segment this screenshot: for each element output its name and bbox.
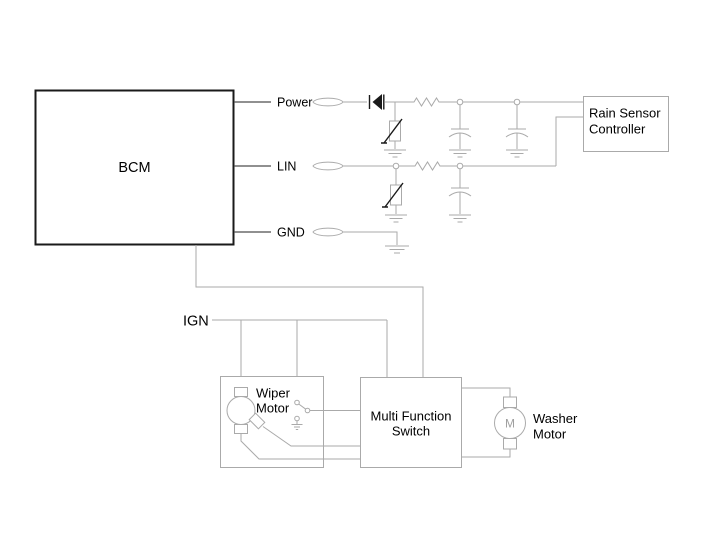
power-wire-with-resistor [385, 98, 583, 106]
ground-icon [449, 215, 471, 222]
washer-motor-label-line2: Motor [533, 427, 567, 442]
power-filter-capacitor-icon [370, 94, 384, 110]
lin-wire-with-resistor [343, 117, 583, 170]
wiper-motor-label-line1: Wiper [256, 386, 291, 401]
gnd-pin-label: GND [277, 226, 305, 240]
bcm-label: BCM [118, 160, 150, 176]
multi-function-switch-label-line2: Switch [392, 424, 430, 439]
washer-motor-symbol: M [495, 397, 526, 449]
power-varistor-icon [381, 119, 402, 143]
lin-pin-label: LIN [277, 160, 296, 174]
ign-label: IGN [183, 314, 209, 330]
wiring-diagram-page: BCM Power LIN GND Rain Se [0, 0, 703, 559]
lin-connector-oval-icon [313, 162, 343, 170]
junction-dot [514, 99, 520, 105]
junction-dot [457, 163, 463, 169]
ground-icon [385, 246, 409, 253]
wiper-motor-label-line2: Motor [256, 401, 290, 416]
wiring-diagram: BCM Power LIN GND Rain Se [0, 0, 703, 559]
washer-motor-letter: M [505, 417, 515, 431]
ground-icon [506, 150, 528, 157]
power-pin-label: Power [277, 96, 312, 110]
gnd-wire [343, 232, 397, 245]
bcm-to-mfs-wire [196, 245, 423, 377]
ground-icon [384, 150, 406, 157]
multi-function-switch-label-line1: Multi Function [371, 409, 452, 424]
junction-dot [457, 99, 463, 105]
power-connector-oval-icon [313, 98, 343, 106]
rain-sensor-controller-label-line2: Controller [589, 122, 646, 137]
ground-icon [449, 150, 471, 157]
washer-motor-label-line1: Washer [533, 411, 578, 426]
rain-sensor-controller-label-line1: Rain Sensor [589, 106, 661, 121]
junction-dot [393, 163, 399, 169]
gnd-connector-oval-icon [313, 228, 343, 236]
lin-varistor-icon [382, 183, 403, 207]
ground-icon [385, 215, 407, 222]
